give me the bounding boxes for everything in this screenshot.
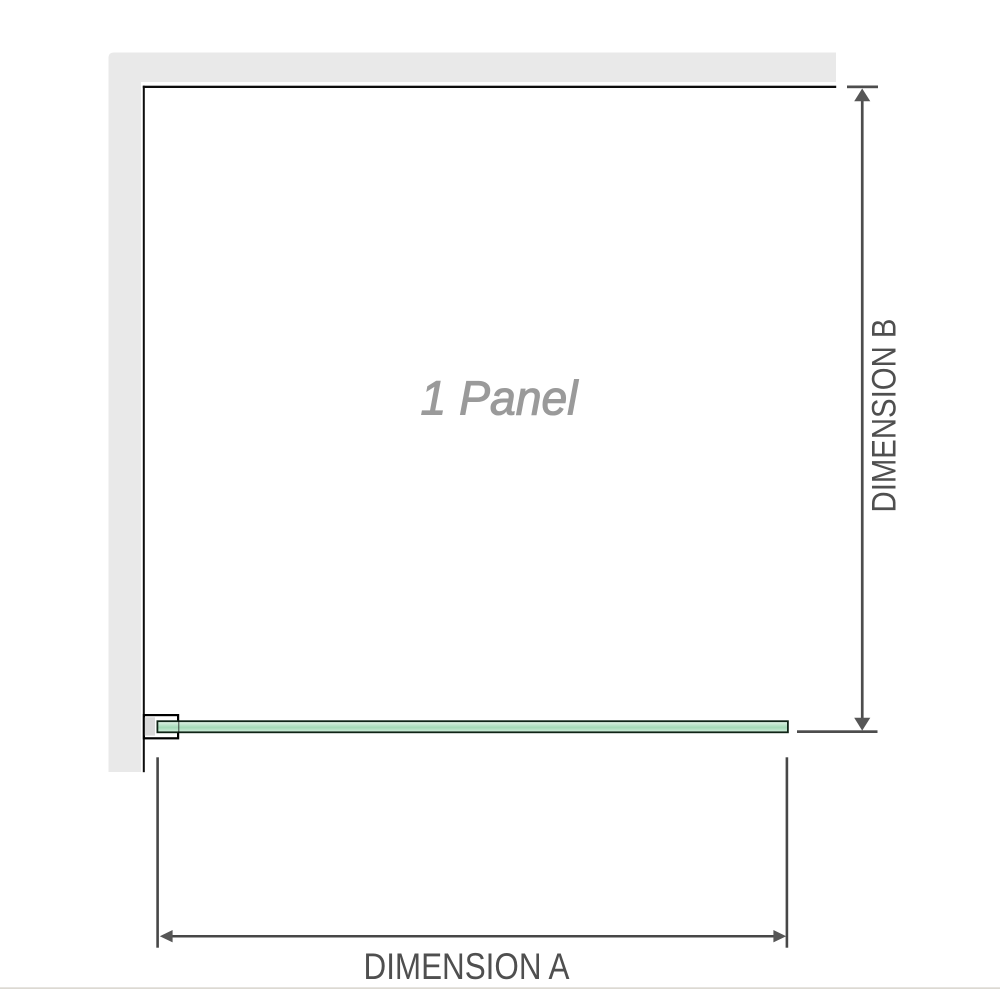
svg-text:DIMENSION B: DIMENSION B: [866, 319, 904, 513]
svg-text:DIMENSION A: DIMENSION A: [364, 946, 570, 987]
svg-text:1 Panel: 1 Panel: [421, 373, 579, 426]
